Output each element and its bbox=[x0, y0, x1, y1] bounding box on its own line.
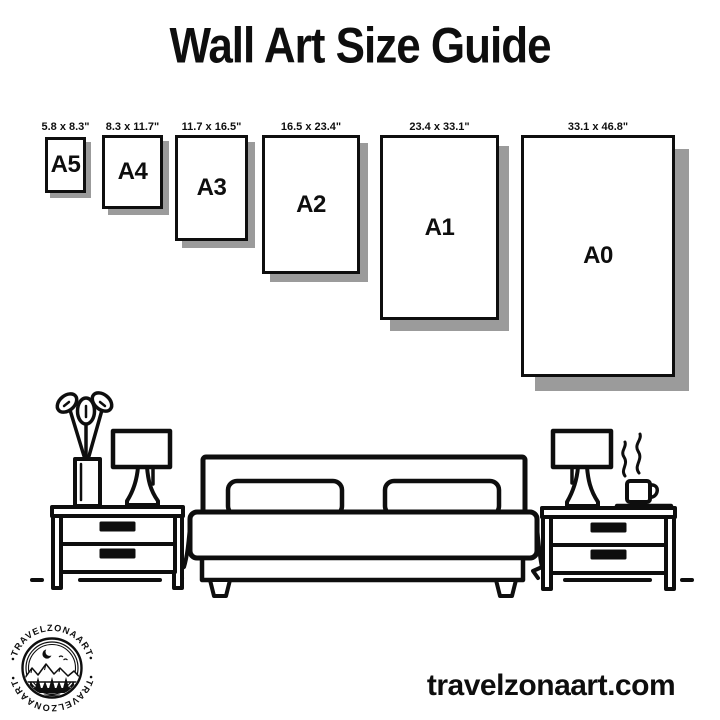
steam-icon bbox=[623, 442, 626, 476]
table-lamp-left-icon bbox=[113, 431, 170, 505]
paper-frame: A4 bbox=[102, 135, 163, 209]
steam-icon bbox=[637, 434, 640, 473]
bed-foot bbox=[210, 580, 230, 596]
bedroom-illustration bbox=[20, 385, 700, 600]
frame-wrap: A1 bbox=[380, 135, 499, 320]
bed-icon bbox=[177, 457, 542, 596]
drawer-handle bbox=[592, 524, 625, 531]
size-dimensions-label: 16.5 x 23.4" bbox=[281, 121, 341, 133]
frame-wrap: A3 bbox=[175, 135, 248, 241]
size-dimensions-label: 8.3 x 11.7" bbox=[106, 121, 160, 133]
bed-foot bbox=[496, 580, 516, 596]
website-url: travelzonaart.com bbox=[401, 671, 701, 701]
moon-crescent-cut bbox=[46, 648, 54, 656]
size-name-label: A5 bbox=[51, 151, 81, 179]
cup-body bbox=[627, 481, 650, 502]
nightstand-left-icon bbox=[52, 507, 183, 588]
paper-frame: A0 bbox=[521, 135, 675, 377]
size-dimensions-label: 5.8 x 8.3" bbox=[41, 121, 89, 133]
frame-wrap: A5 bbox=[45, 137, 86, 193]
size-name-label: A2 bbox=[296, 191, 326, 219]
nightstand-right-icon bbox=[542, 508, 675, 589]
size-dimensions-label: 23.4 x 33.1" bbox=[409, 121, 469, 133]
drawer-handle bbox=[101, 523, 134, 530]
paper-frame: A1 bbox=[380, 135, 499, 320]
paper-frame: A5 bbox=[45, 137, 86, 193]
vase bbox=[75, 459, 100, 506]
size-name-label: A3 bbox=[197, 174, 227, 202]
paper-frame: A2 bbox=[262, 135, 360, 274]
coffee-cup-icon bbox=[617, 434, 671, 506]
frame-wrap: A0 bbox=[521, 135, 675, 377]
drawer-handle bbox=[101, 550, 134, 557]
page-title: Wall Art Size Guide bbox=[0, 22, 720, 72]
brand-logo-badge: •TRAVELZONAART• •TRAVELZONAART• bbox=[2, 618, 102, 718]
drawer-handle bbox=[592, 551, 625, 558]
paper-frame: A3 bbox=[175, 135, 248, 241]
plant-vase-icon bbox=[54, 389, 115, 506]
frame-wrap: A2 bbox=[262, 135, 360, 274]
size-name-label: A0 bbox=[583, 242, 613, 270]
size-dimensions-label: 11.7 x 16.5" bbox=[182, 121, 242, 133]
frame-wrap: A4 bbox=[102, 135, 163, 209]
mattress bbox=[190, 512, 537, 558]
lamp-shade bbox=[553, 431, 611, 467]
lamp-shade bbox=[113, 431, 170, 467]
bed-base bbox=[202, 558, 523, 580]
size-name-label: A4 bbox=[118, 158, 148, 186]
size-name-label: A1 bbox=[425, 214, 455, 242]
table-lamp-right-icon bbox=[553, 431, 611, 506]
size-dimensions-label: 33.1 x 46.8" bbox=[568, 121, 628, 133]
